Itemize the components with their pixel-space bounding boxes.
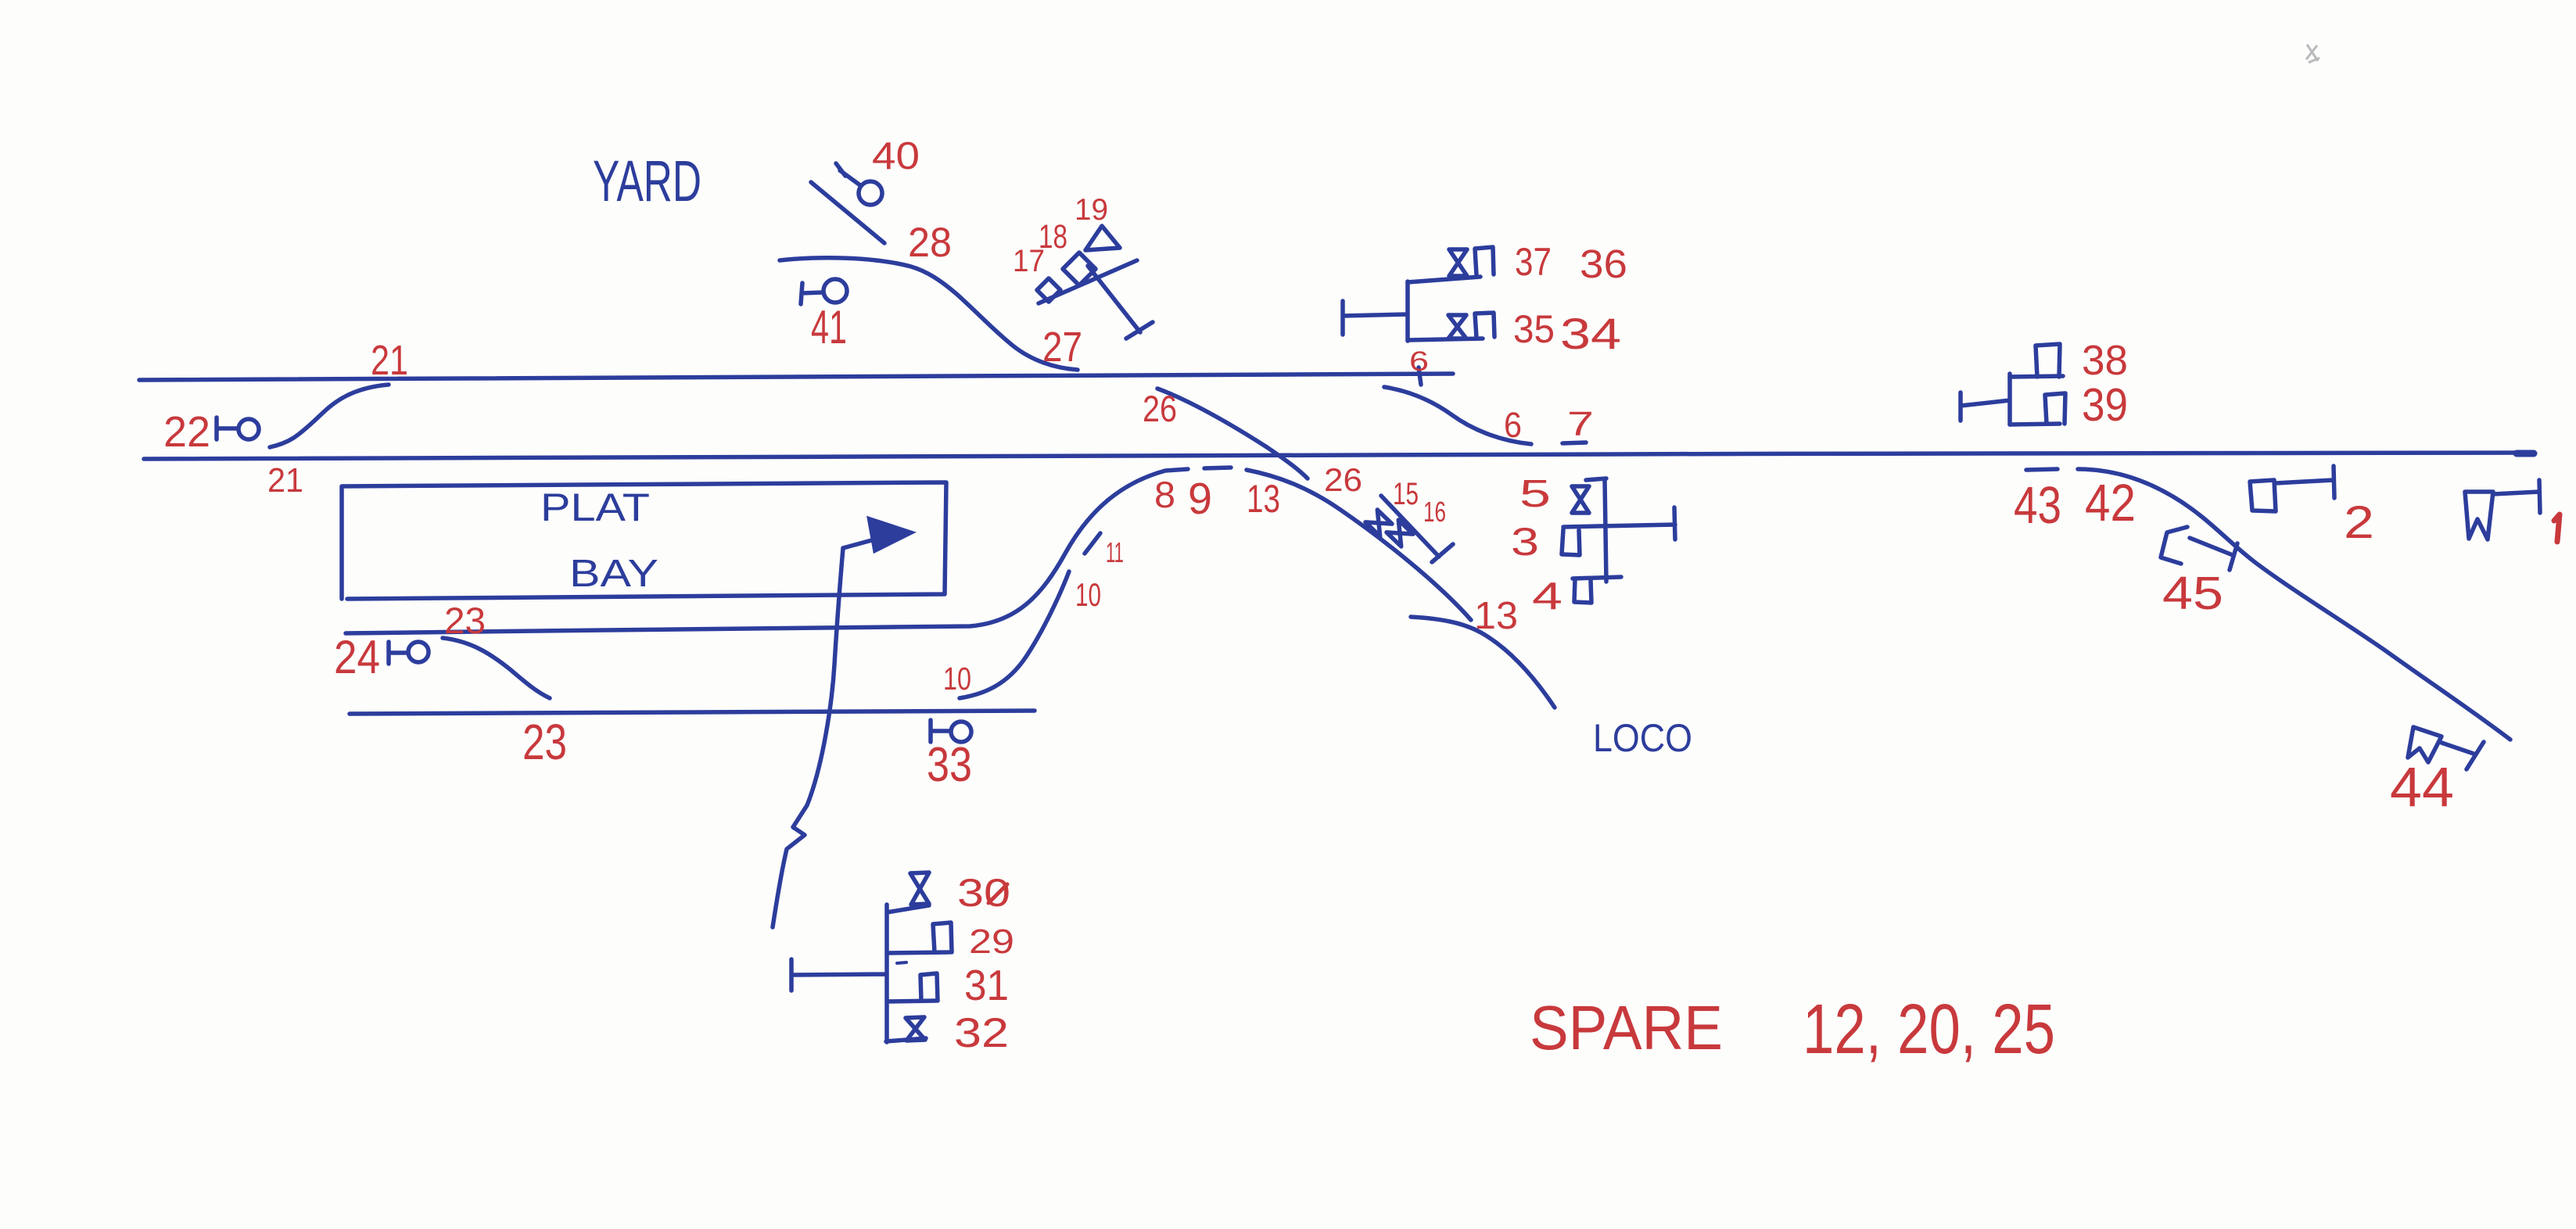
svg-text:21: 21	[371, 337, 408, 384]
svg-text:24: 24	[334, 631, 380, 683]
svg-text:44: 44	[2390, 757, 2454, 819]
svg-text:YARD: YARD	[593, 149, 701, 213]
svg-text:BAY: BAY	[569, 553, 658, 595]
svg-text:26: 26	[1143, 388, 1177, 429]
svg-text:42: 42	[2085, 474, 2136, 532]
svg-text:29: 29	[969, 923, 1014, 961]
svg-text:6: 6	[1409, 346, 1429, 377]
svg-text:30: 30	[957, 871, 1010, 915]
svg-text:2: 2	[2344, 497, 2374, 548]
svg-text:37: 37	[1515, 240, 1552, 284]
svg-text:19: 19	[1075, 193, 1108, 227]
svg-text:5: 5	[1519, 473, 1551, 515]
svg-text:41: 41	[811, 301, 847, 353]
svg-text:3: 3	[1511, 520, 1539, 564]
svg-text:34: 34	[1560, 309, 1621, 358]
svg-text:33: 33	[927, 738, 972, 792]
svg-text:LOCO: LOCO	[1593, 716, 1692, 760]
svg-text:31: 31	[964, 961, 1009, 1009]
svg-text:39: 39	[2082, 379, 2128, 431]
svg-text:22: 22	[163, 407, 210, 456]
svg-text:36: 36	[1580, 242, 1627, 286]
svg-text:PLAT: PLAT	[540, 486, 650, 529]
svg-text:15: 15	[1393, 477, 1419, 511]
svg-text:27: 27	[1042, 324, 1082, 371]
svg-text:17: 17	[1013, 244, 1045, 278]
svg-text:23: 23	[522, 714, 567, 770]
svg-text:26: 26	[1324, 461, 1362, 498]
svg-text:13: 13	[1474, 595, 1518, 637]
svg-text:4: 4	[1532, 575, 1562, 618]
svg-text:13: 13	[1247, 477, 1280, 521]
svg-text:9: 9	[1188, 474, 1212, 524]
svg-text:23: 23	[444, 600, 486, 641]
svg-text:45: 45	[2162, 568, 2223, 619]
svg-text:7: 7	[1567, 405, 1594, 443]
svg-text:40: 40	[872, 135, 920, 177]
svg-text:6: 6	[1504, 405, 1522, 445]
svg-text:32: 32	[954, 1010, 1009, 1056]
svg-text:SPARE: SPARE	[1530, 993, 1723, 1062]
svg-text:12, 20, 25: 12, 20, 25	[1803, 991, 2055, 1069]
svg-text:8: 8	[1154, 474, 1175, 515]
svg-text:16: 16	[1423, 496, 1446, 528]
svg-text:10: 10	[943, 661, 971, 697]
svg-text:10: 10	[1075, 576, 1101, 613]
svg-text:43: 43	[2014, 476, 2061, 535]
svg-text:28: 28	[908, 220, 952, 266]
svg-text:21: 21	[267, 461, 303, 500]
svg-text:11: 11	[1106, 536, 1124, 568]
svg-text:38: 38	[2082, 337, 2128, 384]
svg-text:35: 35	[1513, 307, 1555, 351]
